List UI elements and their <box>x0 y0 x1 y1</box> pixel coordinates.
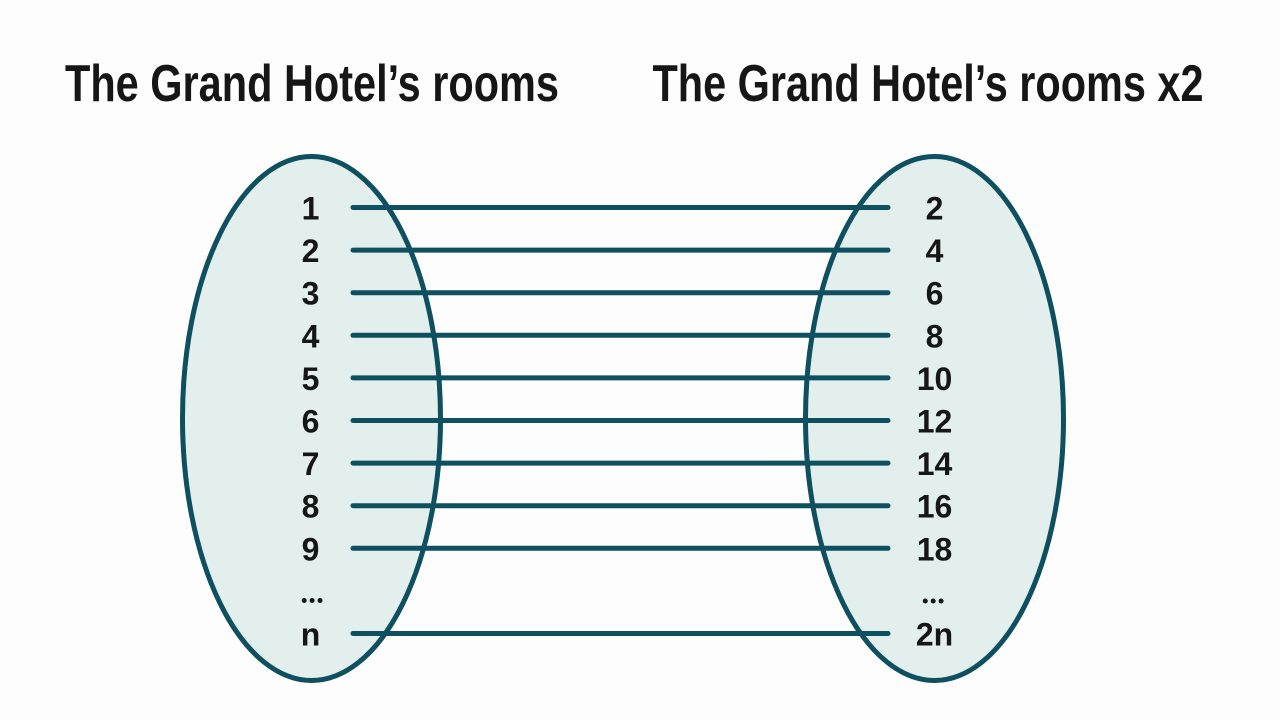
svg-text:14: 14 <box>917 446 953 482</box>
svg-text:6: 6 <box>302 404 320 440</box>
svg-text:2: 2 <box>926 191 944 227</box>
svg-text:7: 7 <box>302 446 320 482</box>
svg-text:4: 4 <box>926 233 944 269</box>
svg-text:8: 8 <box>926 318 944 354</box>
svg-text:4: 4 <box>302 318 320 354</box>
svg-text:10: 10 <box>917 361 953 397</box>
svg-text:The Grand Hotel’s rooms: The Grand Hotel’s rooms <box>65 55 559 113</box>
svg-text:12: 12 <box>917 404 953 440</box>
svg-text:5: 5 <box>302 361 320 397</box>
svg-text:3: 3 <box>302 276 320 312</box>
svg-text:9: 9 <box>302 531 320 567</box>
svg-text:6: 6 <box>926 276 944 312</box>
svg-text:1: 1 <box>302 191 320 227</box>
svg-text:The Grand Hotel’s rooms x2: The Grand Hotel’s rooms x2 <box>653 55 1204 113</box>
svg-text:18: 18 <box>917 531 953 567</box>
svg-text:n: n <box>301 617 321 653</box>
svg-text:8: 8 <box>302 489 320 525</box>
svg-text:16: 16 <box>917 489 953 525</box>
svg-text:2n: 2n <box>916 617 953 653</box>
svg-text:2: 2 <box>302 233 320 269</box>
